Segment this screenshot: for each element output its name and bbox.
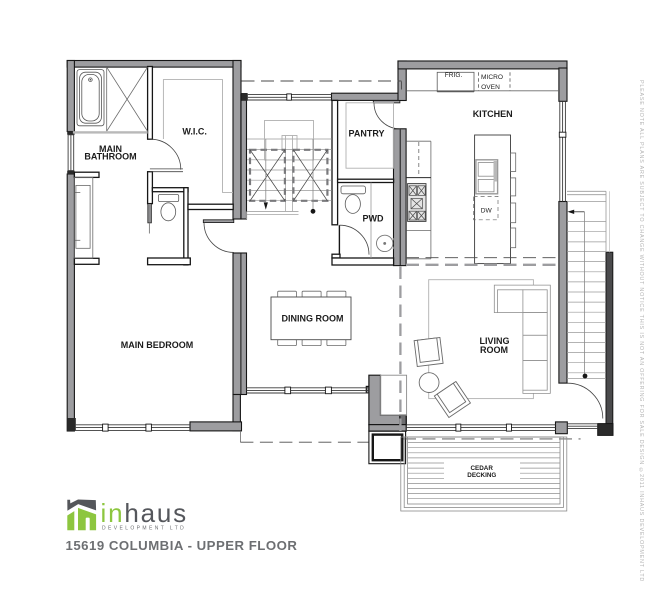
svg-text:OVEN: OVEN: [481, 84, 500, 91]
svg-text:CEDAR: CEDAR: [471, 465, 494, 472]
svg-text:15619 COLUMBIA - UPPER FLOOR: 15619 COLUMBIA - UPPER FLOOR: [66, 538, 298, 553]
svg-text:MAIN BEDROOM: MAIN BEDROOM: [121, 340, 194, 350]
svg-text:BATHROOM: BATHROOM: [84, 152, 136, 162]
svg-text:PWD: PWD: [363, 213, 384, 223]
svg-text:DW: DW: [481, 207, 493, 214]
svg-text:KITCHEN: KITCHEN: [473, 109, 513, 119]
svg-text:ROOM: ROOM: [480, 345, 508, 355]
svg-text:DEVELOPMENT LTD: DEVELOPMENT LTD: [102, 526, 186, 532]
svg-text:DINING ROOM: DINING ROOM: [282, 313, 344, 323]
svg-text:W.I.C.: W.I.C.: [182, 127, 207, 137]
svg-text:MICRO: MICRO: [481, 74, 503, 81]
svg-text:FRIG.: FRIG.: [445, 72, 463, 79]
svg-text:DECKING: DECKING: [467, 472, 496, 479]
svg-text:inhaus: inhaus: [101, 498, 188, 528]
svg-text:PANTRY: PANTRY: [349, 128, 385, 138]
